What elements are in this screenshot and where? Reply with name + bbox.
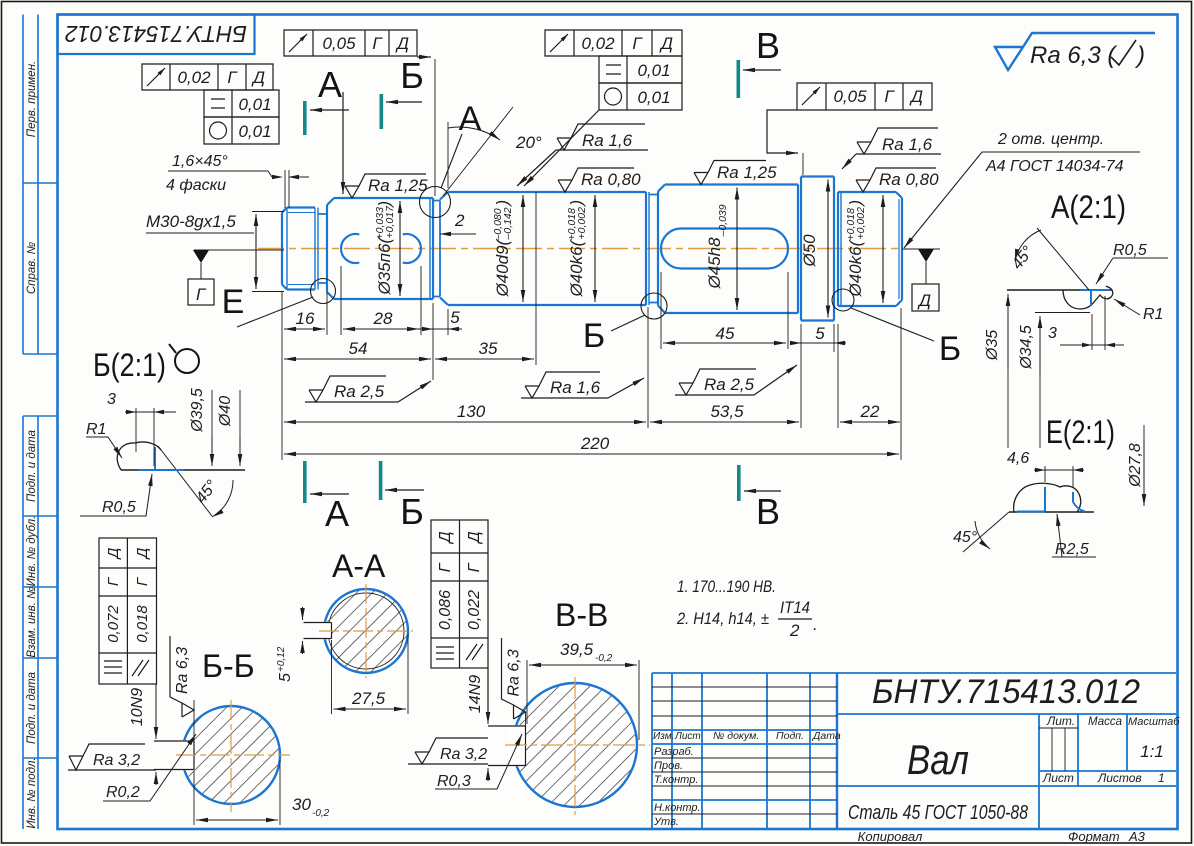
- svg-text:Ø39,5: Ø39,5: [189, 388, 206, 433]
- svg-text:Ra 2,5: Ra 2,5: [334, 382, 385, 401]
- svg-text:10N9: 10N9: [129, 688, 146, 726]
- svg-text:Б-Б: Б-Б: [202, 648, 255, 684]
- svg-text:А4 ГОСТ 14034-74: А4 ГОСТ 14034-74: [985, 158, 1124, 175]
- svg-text:Ra 0,80: Ra 0,80: [581, 170, 641, 189]
- svg-text:0,05: 0,05: [833, 87, 867, 106]
- svg-text:А3: А3: [1128, 829, 1146, 844]
- svg-text:Д: Д: [395, 34, 409, 53]
- svg-text:Вал: Вал: [907, 736, 969, 783]
- svg-text:–0,039: –0,039: [717, 204, 729, 237]
- svg-text:Дата: Дата: [812, 730, 841, 742]
- svg-text:Д: Д: [105, 547, 122, 560]
- svg-text:Е: Е: [222, 283, 245, 321]
- svg-text:БНТУ.715413.012: БНТУ.715413.012: [65, 21, 247, 47]
- svg-text:Подп. и дата: Подп. и дата: [26, 672, 38, 744]
- svg-text:А: А: [459, 100, 482, 138]
- svg-text:-0,2: -0,2: [595, 653, 613, 664]
- svg-text:R0,5: R0,5: [102, 499, 136, 516]
- svg-text:39,5: 39,5: [560, 640, 594, 659]
- svg-text:А: А: [318, 64, 342, 105]
- svg-text:Масштаб: Масштаб: [1128, 716, 1180, 728]
- svg-text:0,01: 0,01: [637, 61, 670, 80]
- svg-text:Лит.: Лит.: [1046, 714, 1075, 728]
- svg-text:Т.контр.: Т.контр.: [654, 774, 698, 786]
- svg-text:Подп. и дата: Подп. и дата: [26, 430, 38, 502]
- svg-text:Ø27,8: Ø27,8: [1127, 443, 1144, 488]
- svg-text:М30-8gх1,5: М30-8gх1,5: [146, 212, 236, 231]
- svg-text:Д: Д: [917, 291, 931, 310]
- svg-text:Инв. № дубл.: Инв. № дубл.: [26, 516, 38, 587]
- svg-text:0,018: 0,018: [134, 605, 151, 643]
- svg-text:45°: 45°: [953, 529, 978, 546]
- svg-text:14N9: 14N9: [467, 675, 484, 713]
- svg-text:Д: Д: [909, 87, 923, 106]
- svg-text:4,6: 4,6: [1007, 450, 1029, 467]
- svg-text:3: 3: [107, 391, 116, 408]
- svg-text:Взам. инв. №: Взам. инв. №: [26, 586, 38, 658]
- svg-text:0,05: 0,05: [322, 34, 356, 53]
- svg-text:Ø40d9(: Ø40d9(: [493, 237, 512, 297]
- svg-text:Б: Б: [400, 55, 424, 96]
- svg-text:Д: Д: [437, 531, 454, 544]
- svg-text:1. 170...190 НВ.: 1. 170...190 НВ.: [677, 577, 776, 596]
- svg-text:Г: Г: [466, 562, 483, 572]
- svg-text:28: 28: [373, 309, 393, 328]
- svg-text:): ): [493, 200, 512, 208]
- svg-text:0,086: 0,086: [437, 590, 454, 630]
- svg-text:Подп.: Подп.: [776, 730, 804, 742]
- svg-text:Масса: Масса: [1088, 716, 1122, 728]
- svg-text:Ø40k6(: Ø40k6(: [567, 238, 586, 297]
- svg-text:30: 30: [292, 795, 311, 814]
- svg-text:Утв.: Утв.: [653, 816, 679, 828]
- svg-text:Сталь 45 ГОСТ 1050-88: Сталь 45 ГОСТ 1050-88: [848, 802, 1028, 824]
- svg-text:Ra 1,25: Ra 1,25: [717, 163, 777, 182]
- svg-text:Ra 1,6: Ra 1,6: [582, 131, 633, 150]
- svg-text:0,01: 0,01: [637, 88, 670, 107]
- svg-text:R0,5: R0,5: [1113, 242, 1147, 259]
- svg-text:53,5: 53,5: [710, 402, 744, 421]
- svg-text:R1: R1: [1143, 306, 1163, 323]
- svg-text:R0,2: R0,2: [106, 784, 140, 801]
- svg-text:2. Н14, h14, ±: 2. Н14, h14, ±: [676, 609, 769, 628]
- svg-text:220: 220: [580, 434, 610, 453]
- svg-text:45: 45: [716, 324, 735, 343]
- svg-text:Ø34,5: Ø34,5: [1018, 325, 1035, 370]
- svg-text:3: 3: [1048, 325, 1057, 342]
- svg-text:.: .: [813, 615, 818, 634]
- svg-text:27,5: 27,5: [351, 689, 386, 708]
- svg-text:А(2:1): А(2:1): [1051, 189, 1126, 225]
- svg-text:Д: Д: [659, 34, 673, 53]
- svg-text:5: 5: [450, 308, 460, 327]
- svg-text:1,6×45°: 1,6×45°: [172, 153, 228, 170]
- svg-text:1: 1: [1158, 771, 1165, 785]
- svg-text:Ø50: Ø50: [800, 234, 819, 268]
- svg-text:Б: Б: [939, 330, 961, 368]
- svg-text:Разраб.: Разраб.: [654, 746, 694, 758]
- svg-text:Ra 1,6: Ra 1,6: [882, 135, 933, 154]
- svg-text:-0,2: -0,2: [312, 808, 330, 819]
- svg-text:Ra 2,5: Ra 2,5: [704, 375, 755, 394]
- svg-text:R0,3: R0,3: [437, 773, 471, 790]
- svg-text:Ra 3,2: Ra 3,2: [440, 746, 487, 763]
- svg-text:Изм.: Изм.: [653, 731, 674, 742]
- svg-text:Б: Б: [400, 491, 424, 532]
- svg-text:Д: Д: [251, 68, 265, 87]
- svg-text:Ø35п6(: Ø35п6(: [375, 236, 394, 296]
- svg-text:54: 54: [349, 339, 368, 358]
- svg-text:Ra 1,25: Ra 1,25: [368, 176, 428, 195]
- svg-text:0,02: 0,02: [177, 68, 211, 87]
- svg-text:+0,017: +0,017: [384, 205, 396, 239]
- svg-text:35: 35: [479, 339, 498, 358]
- svg-text:0,01: 0,01: [238, 122, 271, 141]
- svg-text:Д: Д: [466, 531, 483, 544]
- svg-text:): ): [567, 200, 586, 208]
- svg-text:1:1: 1:1: [1140, 742, 1164, 761]
- svg-text:2: 2: [454, 211, 465, 230]
- svg-text:+0,12: +0,12: [276, 646, 287, 672]
- svg-text:Н.контр.: Н.контр.: [654, 802, 701, 814]
- svg-text:20°: 20°: [515, 133, 542, 152]
- svg-text:Ø40: Ø40: [217, 396, 234, 427]
- svg-text:Ra 6,3 (: Ra 6,3 (: [1030, 42, 1118, 69]
- svg-text:Формат: Формат: [1068, 829, 1120, 844]
- svg-text:Ra 0,80: Ra 0,80: [879, 170, 939, 189]
- svg-text:5: 5: [815, 324, 825, 343]
- svg-text:Е(2:1): Е(2:1): [1046, 414, 1115, 450]
- svg-text:Б(2:1): Б(2:1): [93, 347, 166, 383]
- svg-text:R1: R1: [86, 421, 106, 438]
- svg-text:Ra 6,3: Ra 6,3: [506, 649, 523, 696]
- svg-text:Справ. №: Справ. №: [26, 241, 38, 294]
- svg-text:+0,002: +0,002: [576, 207, 588, 240]
- svg-text:–0,142: –0,142: [502, 207, 514, 240]
- svg-text:5: 5: [277, 673, 294, 682]
- svg-text:В: В: [756, 25, 780, 66]
- svg-text:0,02: 0,02: [581, 34, 615, 53]
- svg-text:Б: Б: [583, 317, 605, 355]
- svg-text:Перв. примен.: Перв. примен.: [26, 61, 38, 137]
- svg-text:Пров.: Пров.: [654, 760, 683, 772]
- svg-text:В-В: В-В: [555, 597, 608, 633]
- svg-text:22: 22: [860, 402, 880, 421]
- svg-text:Ø40k6(: Ø40k6(: [846, 238, 865, 297]
- svg-text:А: А: [325, 493, 349, 534]
- svg-text:0,01: 0,01: [238, 95, 271, 114]
- svg-text:16: 16: [296, 309, 315, 328]
- svg-text:Ra 3,2: Ra 3,2: [93, 752, 140, 769]
- svg-text:Ra 6,3: Ra 6,3: [174, 647, 191, 694]
- svg-text:130: 130: [457, 402, 486, 421]
- svg-text:А-А: А-А: [332, 548, 386, 584]
- svg-text:Листов: Листов: [1097, 771, 1142, 785]
- svg-text:Лист: Лист: [674, 731, 701, 742]
- svg-text:): ): [846, 200, 865, 208]
- svg-text:Ra 1,6: Ra 1,6: [550, 378, 601, 397]
- svg-text:В: В: [756, 491, 780, 532]
- svg-text:Инв. № подл.: Инв. № подл.: [26, 757, 38, 828]
- svg-text:Д: Д: [134, 547, 151, 560]
- svg-text:4 фаски: 4 фаски: [166, 177, 226, 194]
- svg-text:): ): [375, 201, 394, 209]
- svg-text:№ докум.: № докум.: [713, 730, 759, 742]
- svg-text:Копировал: Копировал: [858, 829, 923, 844]
- svg-text:2: 2: [789, 621, 800, 640]
- svg-text:Г: Г: [437, 562, 454, 572]
- svg-text:IT14: IT14: [780, 598, 810, 617]
- svg-text:+0,002: +0,002: [855, 207, 867, 240]
- svg-text:0,022: 0,022: [466, 590, 483, 630]
- svg-text:Лист: Лист: [1042, 771, 1074, 785]
- svg-text:Ø35: Ø35: [984, 330, 1001, 361]
- svg-text:0,072: 0,072: [105, 605, 122, 643]
- svg-text:Ø45h8: Ø45h8: [705, 237, 724, 290]
- svg-text:БНТУ.715413.012: БНТУ.715413.012: [872, 673, 1140, 711]
- svg-text:2 отв. центр.: 2 отв. центр.: [997, 131, 1104, 148]
